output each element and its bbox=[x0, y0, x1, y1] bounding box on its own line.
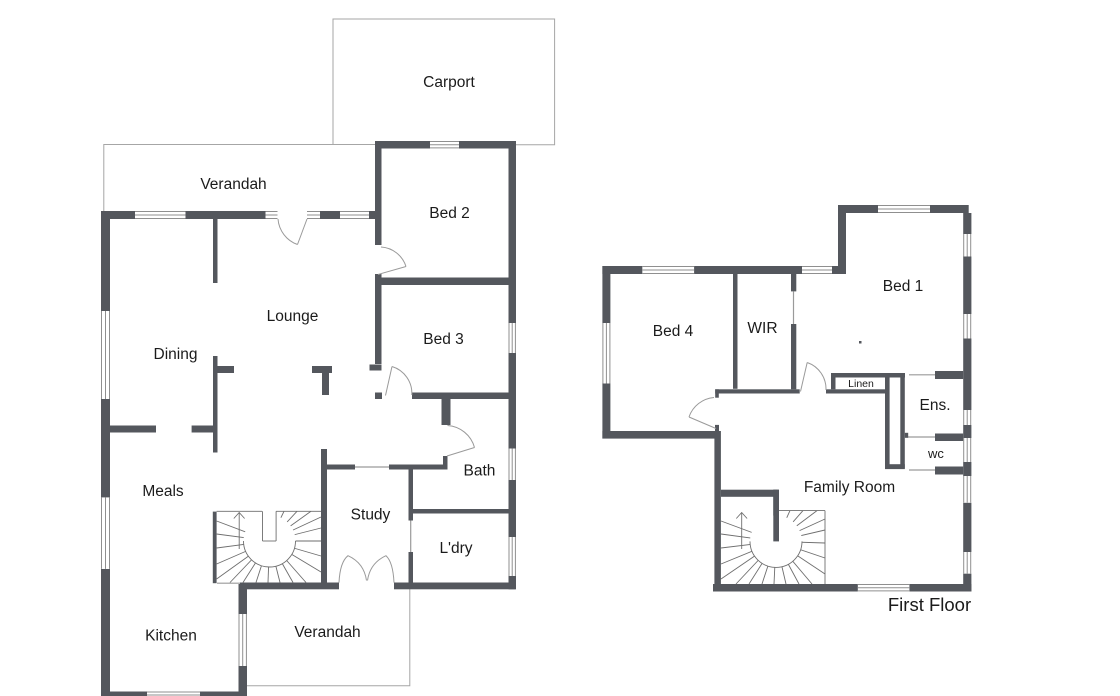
svg-text:wc: wc bbox=[927, 446, 944, 461]
svg-text:Study: Study bbox=[351, 507, 391, 524]
svg-text:Bed 2: Bed 2 bbox=[429, 205, 470, 222]
svg-text:Carport: Carport bbox=[423, 74, 475, 91]
svg-text:Bed 3: Bed 3 bbox=[423, 331, 464, 348]
svg-text:Bed 4: Bed 4 bbox=[653, 323, 694, 340]
svg-text:Family Room: Family Room bbox=[804, 479, 895, 496]
svg-text:Verandah: Verandah bbox=[294, 624, 360, 641]
svg-text:Verandah: Verandah bbox=[200, 176, 266, 193]
svg-text:Linen: Linen bbox=[848, 378, 874, 390]
svg-text:Lounge: Lounge bbox=[267, 308, 319, 325]
svg-text:Bed 1: Bed 1 bbox=[883, 278, 924, 295]
svg-text:Ens.: Ens. bbox=[919, 397, 950, 414]
svg-text:Dining: Dining bbox=[154, 346, 198, 363]
svg-text:Meals: Meals bbox=[142, 483, 184, 500]
svg-text:WIR: WIR bbox=[747, 320, 777, 337]
svg-text:L'dry: L'dry bbox=[439, 540, 472, 557]
svg-text:Kitchen: Kitchen bbox=[145, 628, 197, 645]
svg-text:Bath: Bath bbox=[464, 463, 496, 480]
svg-text:First Floor: First Floor bbox=[888, 594, 971, 615]
